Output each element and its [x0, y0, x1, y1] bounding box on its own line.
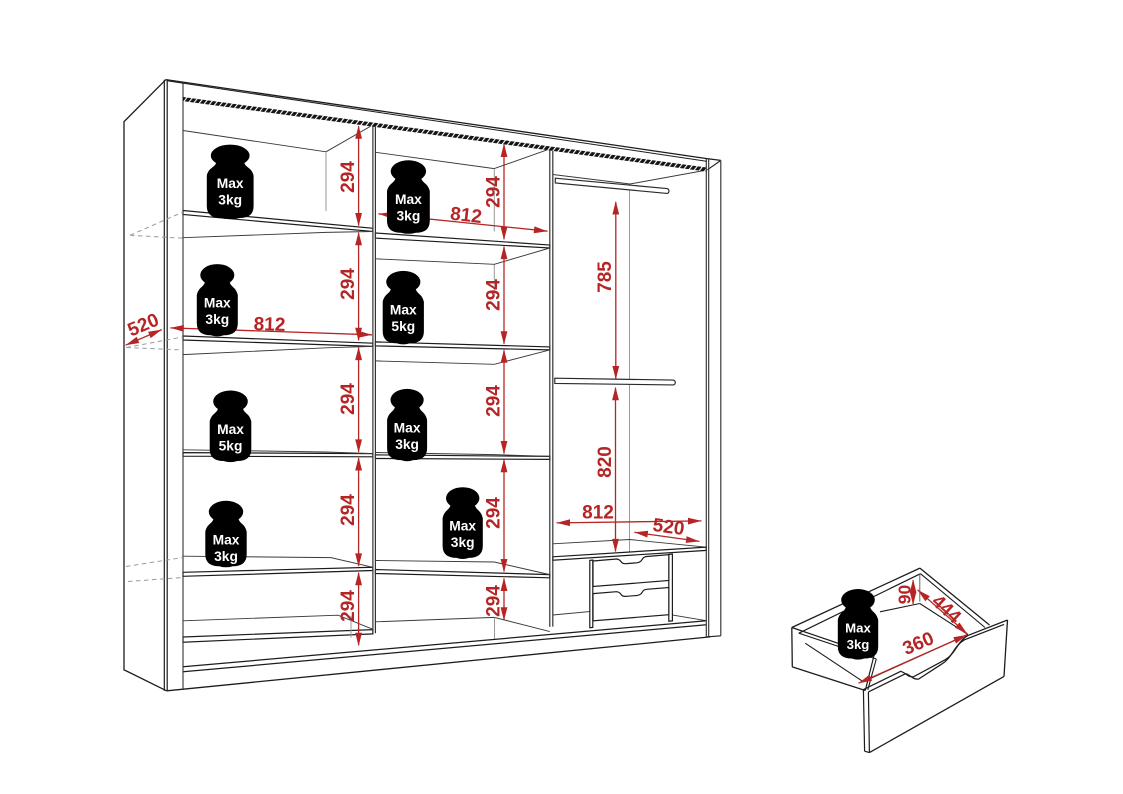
svg-text:Max: Max: [845, 621, 871, 636]
svg-text:785: 785: [595, 261, 616, 293]
svg-text:520: 520: [651, 515, 685, 540]
svg-text:294: 294: [338, 494, 359, 526]
svg-text:812: 812: [449, 204, 483, 228]
svg-text:294: 294: [338, 590, 359, 622]
svg-text:820: 820: [595, 446, 616, 478]
svg-text:294: 294: [483, 385, 504, 417]
svg-text:3kg: 3kg: [218, 193, 242, 208]
svg-text:294: 294: [483, 176, 504, 208]
svg-text:3kg: 3kg: [205, 312, 229, 327]
svg-text:812: 812: [253, 314, 285, 336]
svg-text:Max: Max: [395, 192, 422, 207]
svg-text:3kg: 3kg: [847, 637, 870, 652]
svg-text:5kg: 5kg: [391, 319, 415, 334]
svg-text:Max: Max: [217, 422, 244, 437]
svg-text:Max: Max: [390, 302, 417, 317]
svg-text:Max: Max: [449, 519, 476, 534]
svg-text:294: 294: [483, 279, 504, 311]
svg-text:294: 294: [338, 383, 359, 415]
svg-text:294: 294: [338, 268, 359, 300]
svg-text:3kg: 3kg: [451, 535, 475, 550]
svg-text:5kg: 5kg: [219, 439, 243, 454]
svg-text:90: 90: [895, 585, 915, 605]
svg-text:Max: Max: [213, 532, 240, 547]
svg-text:Max: Max: [204, 296, 231, 311]
svg-text:3kg: 3kg: [395, 437, 419, 452]
svg-text:294: 294: [338, 161, 359, 193]
svg-text:294: 294: [483, 585, 504, 617]
svg-text:3kg: 3kg: [397, 208, 421, 223]
svg-text:3kg: 3kg: [214, 549, 238, 564]
svg-text:Max: Max: [217, 176, 244, 191]
svg-text:Max: Max: [394, 420, 421, 435]
svg-text:294: 294: [483, 497, 504, 529]
svg-text:812: 812: [582, 503, 614, 524]
